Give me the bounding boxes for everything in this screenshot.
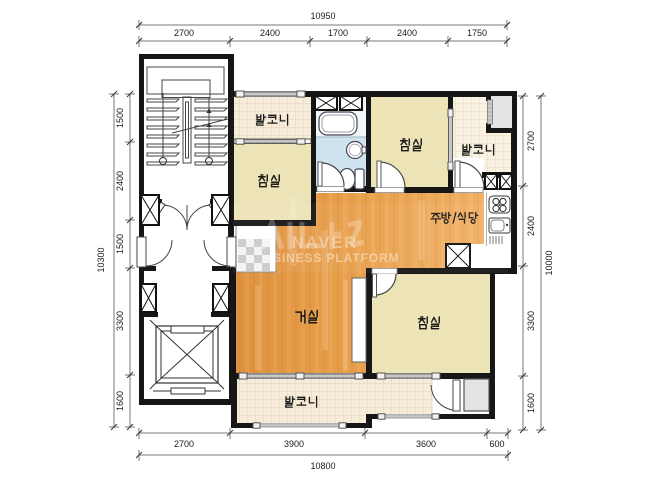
svg-text:3300: 3300 <box>526 311 536 331</box>
svg-text:1700: 1700 <box>328 28 348 38</box>
svg-text:1750: 1750 <box>467 28 487 38</box>
svg-text:10800: 10800 <box>310 461 335 471</box>
svg-text:1600: 1600 <box>115 391 125 411</box>
svg-text:1500: 1500 <box>115 234 125 254</box>
svg-text:1600: 1600 <box>526 393 536 413</box>
svg-text:3600: 3600 <box>416 439 436 449</box>
svg-text:3300: 3300 <box>115 311 125 331</box>
svg-text:10000: 10000 <box>544 250 554 275</box>
svg-text:2400: 2400 <box>526 216 536 236</box>
svg-text:2400: 2400 <box>397 28 417 38</box>
svg-text:600: 600 <box>489 439 504 449</box>
svg-text:2700: 2700 <box>526 131 536 151</box>
svg-text:3900: 3900 <box>284 439 304 449</box>
svg-text:10950: 10950 <box>310 11 335 21</box>
svg-text:10300: 10300 <box>96 247 106 272</box>
svg-text:NAVER: NAVER <box>292 234 359 252</box>
svg-text:2400: 2400 <box>115 171 125 191</box>
svg-text:2700: 2700 <box>174 28 194 38</box>
svg-text:2700: 2700 <box>174 439 194 449</box>
svg-text:1500: 1500 <box>115 108 125 128</box>
svg-text:2400: 2400 <box>260 28 280 38</box>
svg-text:SINESS PLATFORM: SINESS PLATFORM <box>273 251 400 265</box>
